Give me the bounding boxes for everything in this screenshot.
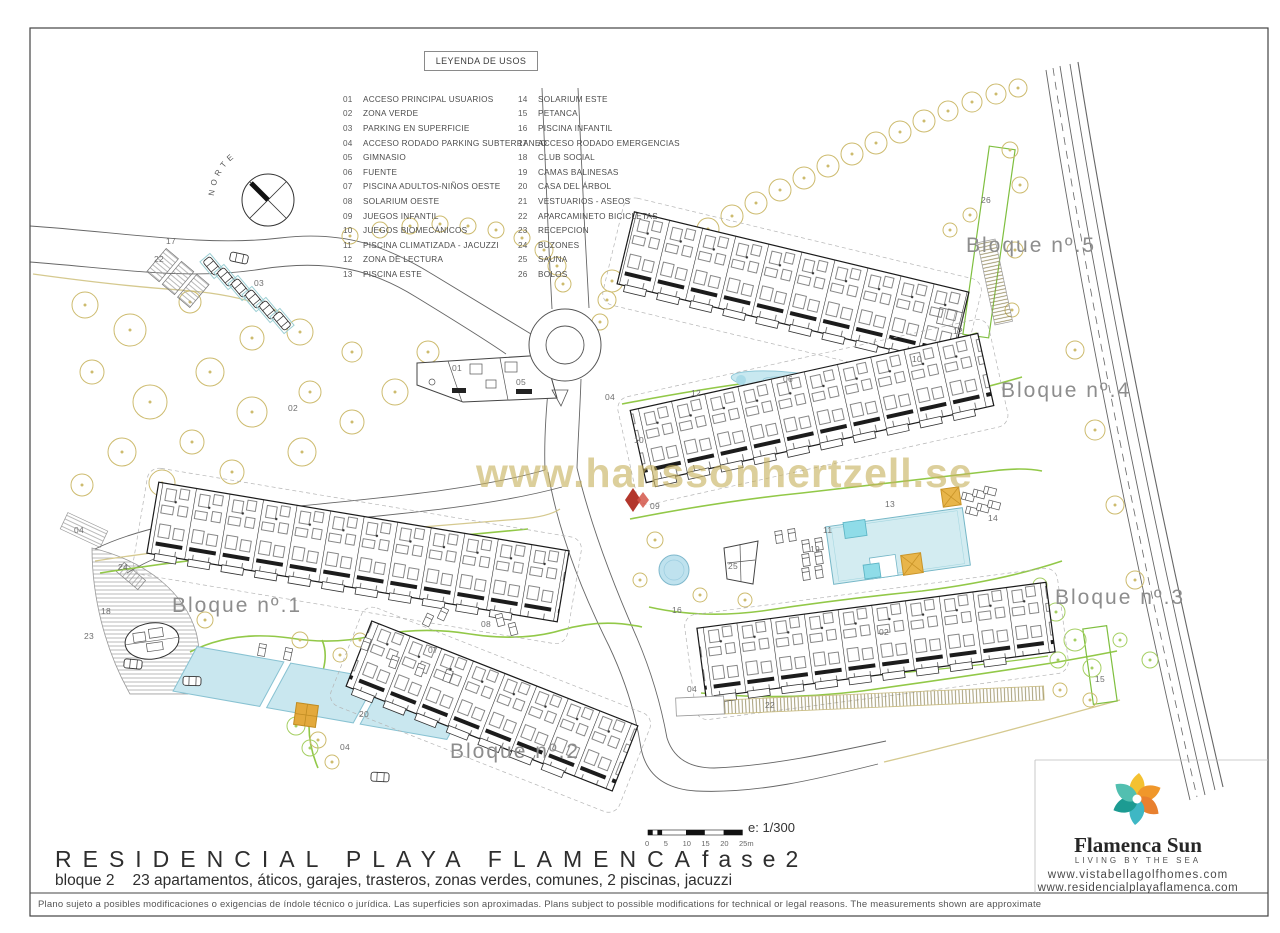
legend-item: 25SAUNA xyxy=(518,253,680,268)
pool-infantil xyxy=(659,555,689,585)
legend-title: LEYENDA DE USOS xyxy=(424,51,538,71)
legend-item: 06FUENTE xyxy=(343,165,547,180)
plan-number: 03 xyxy=(254,278,264,288)
tree-icon xyxy=(204,619,207,622)
legend-item: 19CAMAS BALINESAS xyxy=(518,165,680,180)
tree-icon xyxy=(1009,149,1012,152)
legend-column-2: 14SOLARIUM ESTE15PETANCA16PISCINA INFANT… xyxy=(518,92,680,282)
plan-number: 10 xyxy=(634,435,644,445)
tree-icon xyxy=(1134,579,1137,582)
tree-icon xyxy=(81,484,84,487)
legend-item-label: CASA DEL ÁRBOL xyxy=(538,182,611,191)
logo-center xyxy=(1133,795,1142,804)
legend-item-number: 18 xyxy=(518,153,538,162)
plan-number: 09 xyxy=(650,501,660,511)
plan-number: 12 xyxy=(953,326,963,336)
tree-icon xyxy=(969,214,972,217)
north-compass: NORTE xyxy=(207,146,294,226)
legend-item-label: ZONA VERDE xyxy=(363,109,418,118)
legend-item-number: 10 xyxy=(343,226,363,235)
tree-icon xyxy=(744,599,747,602)
block-label: Bloque nº.4 xyxy=(1001,379,1131,403)
tree-icon xyxy=(995,93,998,96)
plan-number: 04 xyxy=(687,684,697,694)
tree-icon xyxy=(1017,87,1020,90)
lounger-icon xyxy=(422,613,433,627)
tree-icon xyxy=(1149,659,1152,662)
apartment-blocks xyxy=(131,195,1069,815)
lounger-icon xyxy=(802,554,811,567)
plan-number: 22 xyxy=(765,700,775,710)
car-icon xyxy=(124,659,143,670)
lounger-icon xyxy=(815,566,824,579)
legend-item-number: 06 xyxy=(343,168,363,177)
plan-number: 02 xyxy=(288,403,298,413)
lounger-icon xyxy=(802,540,811,553)
legend-item-label: SOLARIUM ESTE xyxy=(538,95,608,104)
tree-icon xyxy=(231,471,234,474)
tree-icon xyxy=(1089,699,1092,702)
block-label: Bloque nº.3 xyxy=(1055,586,1185,610)
legend-item-label: ACCESO RODADO EMERGENCIAS xyxy=(538,139,680,148)
tree-icon xyxy=(699,594,702,597)
legend-item-number: 13 xyxy=(343,270,363,279)
tree-icon xyxy=(209,371,212,374)
tree-icon xyxy=(301,451,304,454)
tree-icon xyxy=(1091,667,1094,670)
legend-item-label: JUEGOS INFANTIL xyxy=(363,212,439,221)
tree-icon xyxy=(1011,309,1014,312)
legend-item-number: 22 xyxy=(518,212,538,221)
legend-item-number: 11 xyxy=(343,241,363,250)
legend-item: 05GIMNASIO xyxy=(343,150,547,165)
site-plan-page: NORTE LEYENDA DE USOS 01ACCESO PRINCIPAL… xyxy=(0,0,1280,933)
legend-item-number: 12 xyxy=(343,255,363,264)
plan-number: 26 xyxy=(981,195,991,205)
tree-icon xyxy=(359,639,362,642)
pool-east xyxy=(826,508,971,585)
tree-icon xyxy=(339,654,342,657)
tree-icon xyxy=(1019,184,1022,187)
legend-item: 16PISCINA INFANTIL xyxy=(518,121,680,136)
jacuzzi xyxy=(843,520,867,539)
legend-item-number: 16 xyxy=(518,124,538,133)
plan-number: 08 xyxy=(481,619,491,629)
tree-icon xyxy=(309,391,312,394)
project-phase: fase2 xyxy=(702,846,808,873)
legend-item: 22APARCAMINETO BICICLETAS xyxy=(518,209,680,224)
legend-item-label: ACCESO PRINCIPAL USUARIOS xyxy=(363,95,493,104)
tree-icon xyxy=(84,304,87,307)
plan-number: 04 xyxy=(605,392,615,402)
tree-icon xyxy=(251,411,254,414)
legend-item: 10JUEGOS BIOMECÁNICOS xyxy=(343,223,547,238)
tree-icon xyxy=(149,401,152,404)
plan-number: 10 xyxy=(912,354,922,364)
tree-icon xyxy=(91,371,94,374)
legend-item-label: GIMNASIO xyxy=(363,153,406,162)
legend-item-label: ZONA DE LECTURA xyxy=(363,255,443,264)
tree-icon xyxy=(309,747,312,750)
plan-number: 16 xyxy=(672,605,682,615)
tree-icon xyxy=(949,229,952,232)
legend-item-label: PARKING EN SUPERFICIE xyxy=(363,124,470,133)
tree-icon xyxy=(947,110,950,113)
block-label: Bloque nº.2 xyxy=(450,740,580,764)
legend-item: 11PISCINA CLIMATIZADA - JACUZZI xyxy=(343,238,547,253)
legend-item-number: 24 xyxy=(518,241,538,250)
lounger-icon xyxy=(802,568,811,581)
legend-item-number: 05 xyxy=(343,153,363,162)
legend-item-label: PISCINA INFANTIL xyxy=(538,124,613,133)
lounger-icon xyxy=(283,647,292,660)
tree-icon xyxy=(129,329,132,332)
legend-item-label: PISCINA CLIMATIZADA - JACUZZI xyxy=(363,241,499,250)
logo-url-1: www.vistabellagolfhomes.com xyxy=(1024,869,1252,881)
plan-number: 04 xyxy=(340,742,350,752)
logo-tagline: LIVING BY THE SEA xyxy=(1040,856,1236,865)
legend-item: 08SOLARIUM OESTE xyxy=(343,194,547,209)
legend-item-number: 21 xyxy=(518,197,538,206)
logo-name: Flamenca Sun xyxy=(1040,833,1236,858)
legend-item: 09JUEGOS INFANTIL xyxy=(343,209,547,224)
legend-item-number: 09 xyxy=(343,212,363,221)
tree-icon xyxy=(1094,429,1097,432)
legend-item: 24BUZONES xyxy=(518,238,680,253)
plan-number: 11 xyxy=(823,525,832,535)
tree-icon xyxy=(351,351,354,354)
plan-number: 01 xyxy=(452,363,462,373)
legend-item: 17ACCESO RODADO EMERGENCIAS xyxy=(518,136,680,151)
tree-icon xyxy=(331,761,334,764)
svg-text:NORTE: NORTE xyxy=(207,150,238,196)
lounger-icon xyxy=(508,622,518,635)
tree-icon xyxy=(351,421,354,424)
tree-icon xyxy=(251,337,254,340)
plan-number: 18 xyxy=(101,606,111,616)
legend-item: 21VESTUARIOS - ASEOS xyxy=(518,194,680,209)
scale-label: e: 1/300 xyxy=(748,820,795,835)
legend-item: 14SOLARIUM ESTE xyxy=(518,92,680,107)
legend-item-number: 01 xyxy=(343,95,363,104)
legend-column-1: 01ACCESO PRINCIPAL USUARIOS02ZONA VERDE0… xyxy=(343,92,547,282)
tree-icon xyxy=(923,120,926,123)
lounger-icon xyxy=(775,531,784,544)
plan-number: 20 xyxy=(359,709,369,719)
legend-item: 02ZONA VERDE xyxy=(343,107,547,122)
legend-item-number: 23 xyxy=(518,226,538,235)
legend-item-number: 04 xyxy=(343,139,363,148)
tree-icon xyxy=(299,331,302,334)
legend-item-label: BUZONES xyxy=(538,241,579,250)
legend-item-number: 17 xyxy=(518,139,538,148)
legend-item-number: 20 xyxy=(518,182,538,191)
legend-item-label: VESTUARIOS - ASEOS xyxy=(538,197,630,206)
legend-item-number: 07 xyxy=(343,182,363,191)
lounger-icon xyxy=(788,529,797,542)
lounger-icon xyxy=(437,607,448,621)
tree-icon xyxy=(971,101,974,104)
disclaimer-text: Plano sujeto a posibles modificaciones o… xyxy=(38,899,1041,910)
tree-icon xyxy=(1057,659,1060,662)
pool-stairs xyxy=(863,563,881,579)
legend-item: 12ZONA DE LECTURA xyxy=(343,253,547,268)
project-subtitle: bloque 223 apartamentos, áticos, garajes… xyxy=(55,872,732,890)
tree-icon xyxy=(1119,639,1122,642)
tree-icon xyxy=(1074,639,1077,642)
compass-label: NORTE xyxy=(207,150,238,196)
legend-item: 03PARKING EN SUPERFICIE xyxy=(343,121,547,136)
tree-icon xyxy=(606,299,609,302)
plan-number: 07 xyxy=(428,645,438,655)
legend-item: 20CASA DEL ÁRBOL xyxy=(518,180,680,195)
tree-icon xyxy=(827,165,830,168)
plan-number: 13 xyxy=(885,499,895,509)
tree-icon xyxy=(191,441,194,444)
tree-icon xyxy=(851,153,854,156)
legend-item-label: PISCINA ESTE xyxy=(363,270,422,279)
tree-icon xyxy=(654,539,657,542)
tree-icon xyxy=(875,142,878,145)
scale-bar xyxy=(648,830,742,835)
car-icon xyxy=(371,772,389,782)
legend-item-number: 19 xyxy=(518,168,538,177)
legend-item-label: JUEGOS BIOMECÁNICOS xyxy=(363,226,467,235)
block-label: Bloque nº.5 xyxy=(966,234,1096,258)
legend-item-number: 15 xyxy=(518,109,538,118)
logo-url-2: www.residencialplayaflamenca.com xyxy=(1024,882,1252,894)
legend-item-label: BOLOS xyxy=(538,270,567,279)
plan-number: 24 xyxy=(118,562,128,572)
legend-item-number: 08 xyxy=(343,197,363,206)
legend-item: 15PETANCA xyxy=(518,107,680,122)
legend-item-label: APARCAMINETO BICICLETAS xyxy=(538,212,658,221)
flamenca-sun-logo-icon xyxy=(1107,768,1167,830)
legend-item: 13PISCINA ESTE xyxy=(343,267,547,282)
legend-item-label: CAMAS BALINESAS xyxy=(538,168,619,177)
legend-item: 23RECEPCION xyxy=(518,223,680,238)
legend-item: 18CLUB SOCIAL xyxy=(518,150,680,165)
legend-item-number: 03 xyxy=(343,124,363,133)
plan-number: 12 xyxy=(691,388,701,398)
legend-item: 04ACCESO RODADO PARKING SUBTERRANEO xyxy=(343,136,547,151)
tree-icon xyxy=(755,202,758,205)
bike-parking-south-pad xyxy=(676,696,725,716)
watermark: www.hanssonhertzell.se xyxy=(476,450,973,497)
car-icon xyxy=(183,676,201,686)
lounger-icon xyxy=(258,643,267,656)
legend-item-number: 14 xyxy=(518,95,538,104)
legend-item-number: 02 xyxy=(343,109,363,118)
legend-item-label: PISCINA ADULTOS-NIÑOS OESTE xyxy=(363,182,500,191)
plan-number: 02 xyxy=(879,627,889,637)
tree-icon xyxy=(121,451,124,454)
plan-number: 14 xyxy=(988,513,998,523)
tree-icon xyxy=(779,189,782,192)
legend-item-label: FUENTE xyxy=(363,168,397,177)
tree-icon xyxy=(1074,349,1077,352)
legend-item-label: SAUNA xyxy=(538,255,567,264)
legend-item-label: PETANCA xyxy=(538,109,578,118)
tree-icon xyxy=(1059,689,1062,692)
tree-icon xyxy=(427,351,430,354)
plan-number: 15 xyxy=(1095,674,1105,684)
tree-icon xyxy=(1055,611,1058,614)
legend-item: 07PISCINA ADULTOS-NIÑOS OESTE xyxy=(343,180,547,195)
legend-item-label: RECEPCION xyxy=(538,226,589,235)
tree-icon xyxy=(562,283,565,286)
legend-item-number: 25 xyxy=(518,255,538,264)
project-title: RESIDENCIAL PLAYA FLAMENCA xyxy=(55,846,701,873)
plan-number: 25 xyxy=(728,561,738,571)
plan-number: 22 xyxy=(154,254,164,264)
legend-item-label: SOLARIUM OESTE xyxy=(363,197,439,206)
legend-item-label: CLUB SOCIAL xyxy=(538,153,595,162)
tree-icon xyxy=(394,391,397,394)
plan-number: 05 xyxy=(516,377,526,387)
plan-number: 19 xyxy=(810,544,820,554)
tree-icon xyxy=(317,739,320,742)
tree-icon xyxy=(731,215,734,218)
tree-icon xyxy=(299,639,302,642)
plan-number: 04 xyxy=(74,525,84,535)
block-label: Bloque nº.1 xyxy=(172,594,302,618)
tree-icon xyxy=(639,579,642,582)
legend-item-number: 26 xyxy=(518,270,538,279)
legend-item: 01ACCESO PRINCIPAL USUARIOS xyxy=(343,92,547,107)
car-icon xyxy=(229,252,248,265)
legend-item: 26BOLOS xyxy=(518,267,680,282)
subtitle-block: bloque 2 xyxy=(55,872,114,889)
plan-number: 06 xyxy=(783,374,793,384)
tree-icon xyxy=(899,131,902,134)
tree-icon xyxy=(1114,504,1117,507)
plan-number: 17 xyxy=(166,236,176,246)
tree-icon xyxy=(803,177,806,180)
treehouse-icon xyxy=(294,703,319,728)
plan-number: 23 xyxy=(84,631,94,641)
subtitle-rest: 23 apartamentos, áticos, garajes, traste… xyxy=(132,872,732,889)
tree-icon xyxy=(599,321,602,324)
treehouse-icon xyxy=(901,553,924,576)
